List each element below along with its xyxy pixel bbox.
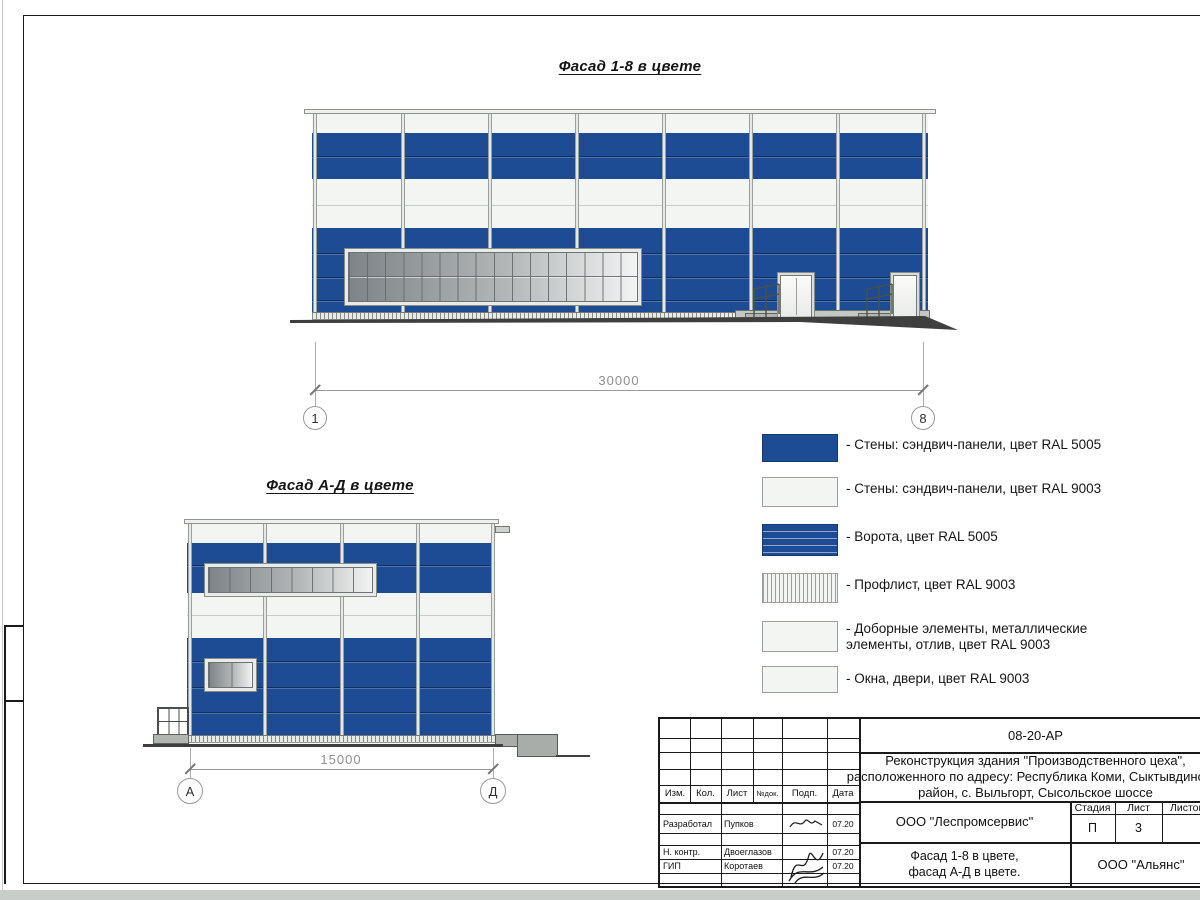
ncontr-date: 07.20 — [827, 845, 859, 859]
legend-swatch-ral9003 — [762, 621, 838, 652]
entrance-door-double — [780, 275, 812, 318]
sheet-left-edge-line — [2, 0, 3, 890]
fasad-1-8-title: Фасад 1-8 в цвете — [500, 58, 760, 75]
extension-line — [923, 342, 924, 406]
col-ndoc: №док. — [753, 785, 782, 802]
list-label: Лист — [1115, 801, 1162, 814]
dimension-line — [190, 769, 493, 770]
fasad-a-d-ribbon-window — [208, 567, 373, 593]
ncontr-gip-signature — [783, 845, 828, 885]
side-railing-grid — [157, 707, 189, 735]
entrance-door-single — [893, 275, 917, 318]
sheet-title: Фасад 1-8 в цвете, фасад А-Д в цвете. — [859, 842, 1070, 886]
stage-value: П — [1070, 814, 1115, 842]
dimension-line — [315, 390, 923, 391]
col-podp: Подп. — [782, 785, 827, 802]
ncontr-name: Двоеглазов — [721, 845, 782, 859]
legend-swatch-ral9003 — [762, 666, 838, 693]
ncontr-role: Н. контр. — [660, 845, 721, 859]
facade-mullion — [188, 524, 192, 735]
dimension-value: 15000 — [266, 752, 416, 767]
legend-label: - Ворота, цвет RAL 5005 — [846, 529, 1156, 545]
col-list: Лист — [721, 785, 753, 802]
list-value: 3 — [1115, 814, 1162, 842]
extension-line — [190, 748, 191, 778]
door-railing — [865, 272, 894, 319]
col-izm: Изм. — [660, 785, 690, 802]
legend-swatch-ral5005 — [762, 434, 838, 462]
facade-mullion — [263, 524, 267, 735]
legend-swatch-gate — [762, 524, 838, 556]
dimension-value: 30000 — [544, 373, 694, 388]
door-railing — [752, 272, 781, 319]
gip-name: Коротаев — [721, 859, 782, 873]
facade-mullion — [416, 524, 420, 735]
drawing-sheet-page: { "colors": { "ral5005": "#1e4c94", "ral… — [0, 0, 1200, 900]
facade-mullion — [836, 114, 840, 312]
gip-date: 07.20 — [827, 859, 859, 873]
legend-swatch-ral9003 — [762, 477, 838, 507]
extension-line — [315, 342, 316, 406]
axis-marker-8: 8 — [911, 406, 935, 430]
margin-hline-1 — [4, 625, 23, 627]
sheet-background: Фасад 1-8 в цвете — [0, 0, 1200, 890]
doc-code: 08-20-АР — [859, 719, 1200, 752]
ground-line-tail — [556, 755, 590, 757]
project-name: Реконструкция здания "Производственного … — [859, 752, 1200, 801]
axis-marker-1: 1 — [303, 406, 327, 430]
axis-marker-d: Д — [480, 778, 506, 804]
title-block: Изм. Кол. Лист №док. Подп. Дата Разработ… — [658, 717, 1200, 888]
legend-label: - Стены: сэндвич-панели, цвет RAL 5005 — [846, 437, 1156, 453]
developer-signature — [784, 815, 827, 832]
listov-label: Листов — [1162, 801, 1200, 814]
fasad-1-8-ribbon-window — [348, 252, 638, 302]
railing-base-block — [153, 734, 189, 744]
roof-gutter-outlet — [495, 526, 510, 533]
facade-mullion — [922, 114, 926, 312]
ground-line — [143, 744, 503, 747]
legend-label: - Профлист, цвет RAL 9003 — [846, 577, 1156, 593]
developer-name: Пупков — [721, 814, 782, 833]
legend-label: - Стены: сэндвич-панели, цвет RAL 9003 — [846, 481, 1156, 497]
stage-label: Стадия — [1070, 801, 1115, 814]
fasad-a-d-title: Фасад А-Д в цвете — [240, 477, 440, 494]
facade-mullion — [491, 524, 495, 735]
client-organization: ООО "Альянс" — [1070, 842, 1200, 886]
facade-mullion — [662, 114, 666, 312]
axis-marker-a: А — [177, 778, 203, 804]
gip-role: ГИП — [660, 859, 721, 873]
developer-date: 07.20 — [827, 814, 859, 833]
facade-mullion — [340, 524, 344, 735]
legend-swatch-proflist — [762, 573, 838, 603]
col-kol: Кол. — [690, 785, 721, 802]
facade-mullion — [313, 114, 317, 312]
right-ramp-block-low — [517, 734, 558, 757]
fasad-a-d-small-window — [208, 662, 253, 688]
extension-line — [493, 748, 494, 778]
developer-role: Разработал — [660, 814, 721, 833]
legend-label: - Доборные элементы, металлические элеме… — [846, 621, 1156, 652]
col-data: Дата — [827, 785, 859, 802]
ground-line — [285, 313, 965, 335]
plinth-proflist-strip — [187, 735, 495, 743]
margin-hline-2 — [4, 700, 23, 702]
design-organization: ООО "Леспромсервис" — [859, 801, 1070, 842]
legend-label: - Окна, двери, цвет RAL 9003 — [846, 671, 1156, 687]
margin-vline — [4, 625, 6, 884]
